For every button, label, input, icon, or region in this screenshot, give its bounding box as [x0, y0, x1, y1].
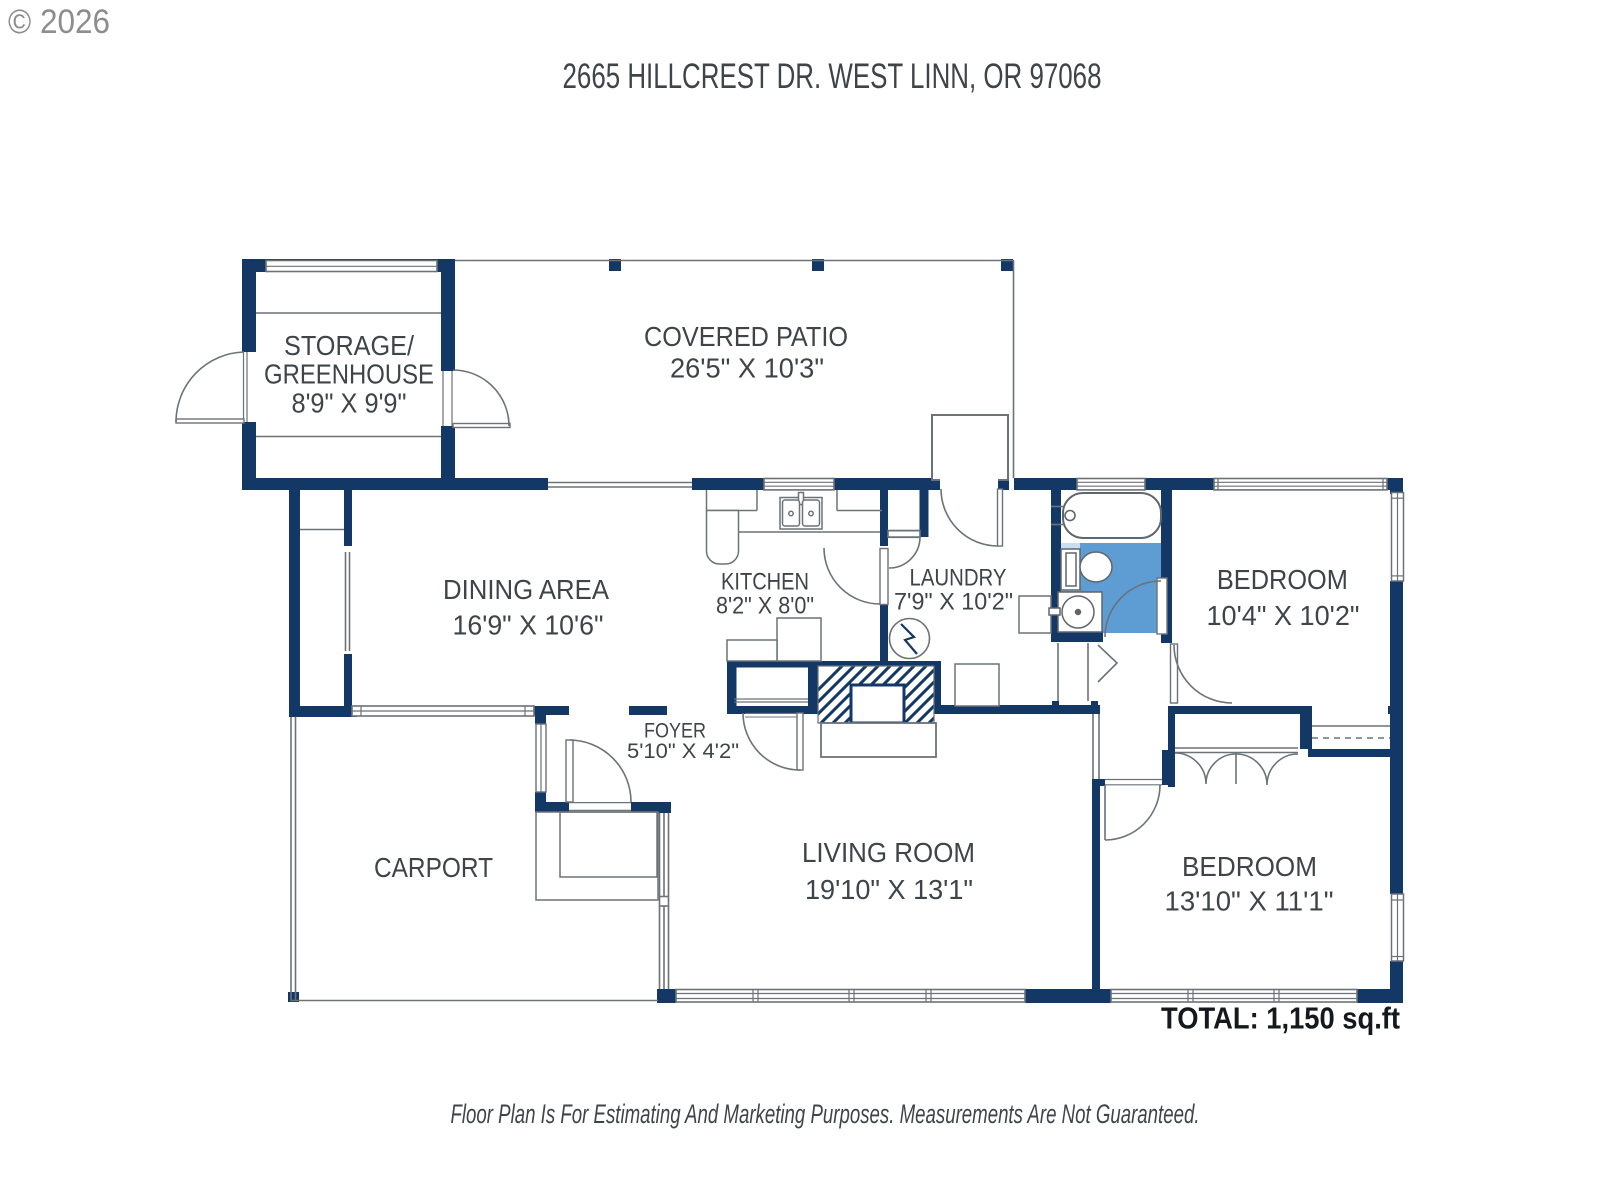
svg-text:COVERED PATIO: COVERED PATIO [644, 321, 848, 352]
svg-text:16'9" X 10'6": 16'9" X 10'6" [453, 610, 604, 641]
svg-text:19'10" X 13'1": 19'10" X 13'1" [805, 874, 973, 905]
svg-text:LAUNDRY: LAUNDRY [910, 565, 1007, 592]
svg-text:BEDROOM: BEDROOM [1182, 851, 1317, 882]
svg-text:26'5" X 10'3": 26'5" X 10'3" [670, 353, 824, 384]
svg-text:© 2026: © 2026 [8, 3, 110, 41]
svg-text:7'9" X 10'2": 7'9" X 10'2" [894, 589, 1013, 616]
svg-text:CARPORT: CARPORT [374, 852, 493, 883]
svg-text:13'10" X 11'1": 13'10" X 11'1" [1165, 886, 1334, 917]
svg-text:KITCHEN: KITCHEN [721, 569, 809, 596]
svg-text:8'9" X 9'9": 8'9" X 9'9" [292, 388, 407, 419]
svg-text:8'2" X 8'0": 8'2" X 8'0" [716, 593, 814, 620]
svg-text:BEDROOM: BEDROOM [1217, 564, 1348, 595]
svg-text:LIVING ROOM: LIVING ROOM [802, 837, 975, 868]
svg-text:GREENHOUSE: GREENHOUSE [264, 359, 434, 390]
svg-text:STORAGE/: STORAGE/ [284, 330, 414, 361]
svg-text:DINING AREA: DINING AREA [443, 574, 609, 605]
svg-text:10'4" X 10'2": 10'4" X 10'2" [1207, 600, 1360, 631]
svg-text:Floor Plan Is For Estimating A: Floor Plan Is For Estimating And Marketi… [451, 1099, 1200, 1129]
svg-text:5'10" X 4'2": 5'10" X 4'2" [627, 740, 739, 763]
svg-text:2665 HILLCREST DR. WEST LINN,: 2665 HILLCREST DR. WEST LINN, OR 97068 [563, 57, 1102, 96]
svg-text:TOTAL: 1,150 sq.ft: TOTAL: 1,150 sq.ft [1161, 1001, 1400, 1036]
